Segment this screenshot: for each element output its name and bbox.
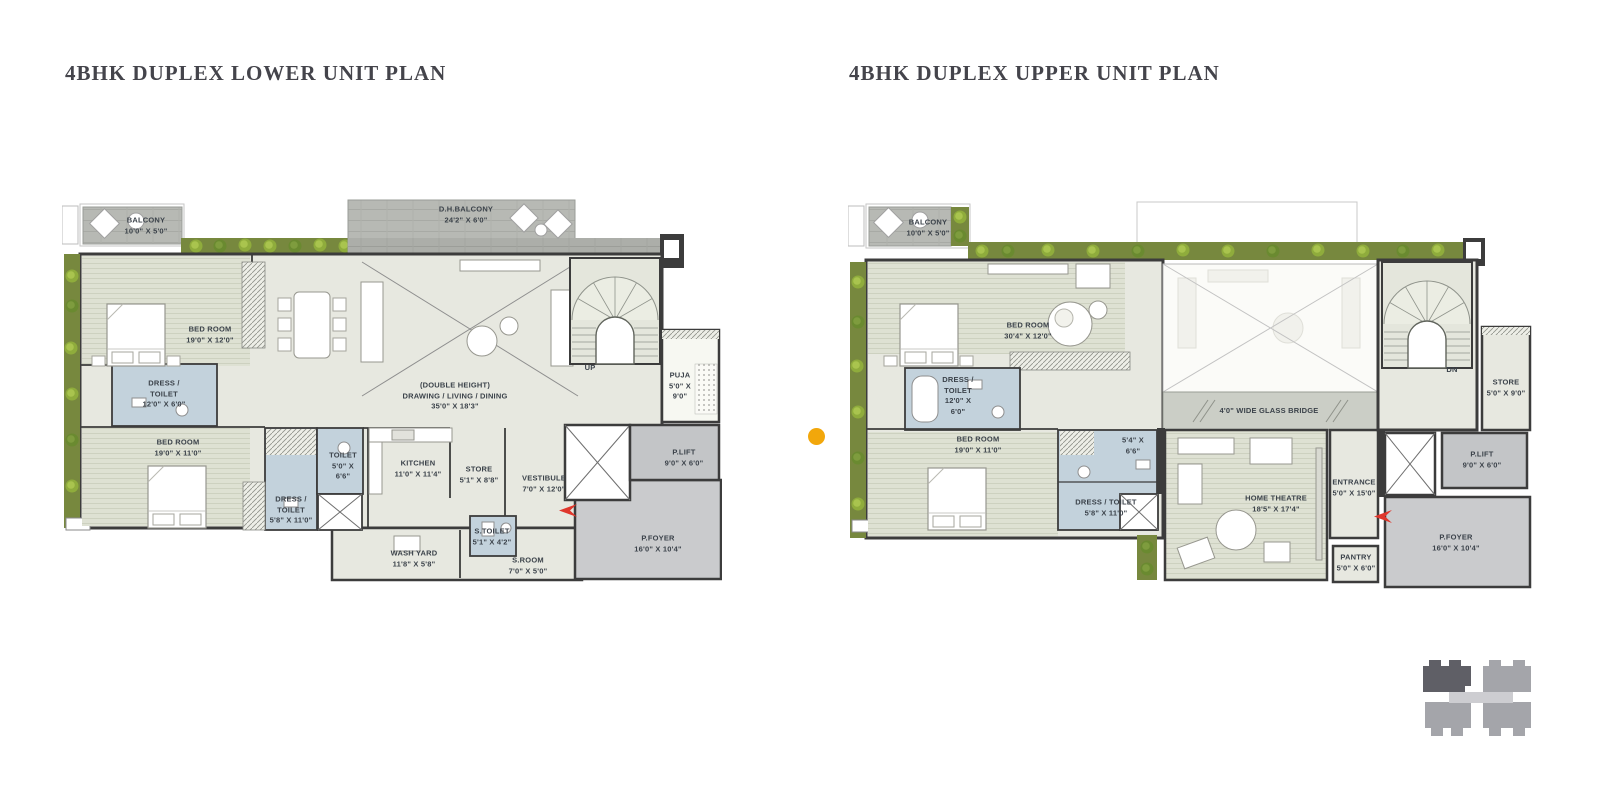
room-label-s-toilet: S.TOILET5'1" X 4'2" xyxy=(473,527,512,548)
glass-bridge-label: 4'0" WIDE GLASS BRIDGE xyxy=(1220,406,1319,417)
room-label-wash-yard: WASH YARD11'8" X 5'8" xyxy=(391,549,438,570)
floorplan-sheet: 4BHK DUPLEX LOWER UNIT PLAN 4BHK DUPLEX … xyxy=(0,0,1600,800)
room-label-p-lift: P.LIFT9'0" X 6'0" xyxy=(665,448,704,469)
wardrobe xyxy=(243,482,265,530)
room-label-kitchen: KITCHEN11'0" X 11'4" xyxy=(395,459,442,480)
room-label-p-foyer: P.FOYER16'0" X 10'4" xyxy=(1432,533,1479,554)
room-label-dress-toilet2: DRESS / TOILET5'8" X 11'0" xyxy=(1075,498,1136,519)
room-label-pantry: PANTRY5'0" X 6'0" xyxy=(1337,553,1376,574)
staircase xyxy=(570,258,660,364)
double-height-void xyxy=(1163,264,1378,392)
room-label-store: STORE5'0" X 9'0" xyxy=(1487,378,1526,399)
wardrobe xyxy=(242,262,265,348)
lift-shaft xyxy=(1385,433,1435,495)
room-label-vestibule: VESTIBULE7'0" X 12'0" xyxy=(522,474,566,495)
room-label-balcony: BALCONY10'0" X 5'0" xyxy=(124,216,167,237)
duct-shaft xyxy=(318,494,362,530)
room-label-entrance: ENTRANCE5'0" X 15'0" xyxy=(1332,478,1375,499)
room-label-dress-toilet1: DRESS /TOILET12'0" X 6'0" xyxy=(142,378,185,410)
upper-unit-plan: BALCONY10'0" X 5'0" BED ROOM30'4" X 12'0… xyxy=(848,198,1548,590)
key-plan xyxy=(1421,656,1546,741)
room-label-puja: PUJA5'0" X9'0" xyxy=(669,370,691,402)
ht-planter xyxy=(1137,535,1157,580)
room-label-toilet: TOILET5'0" X6'6" xyxy=(329,450,357,482)
room-label-p-foyer: P.FOYER16'0" X 10'4" xyxy=(634,534,681,555)
key-plan-unit-highlighted xyxy=(1423,660,1471,696)
room-label-dress-toilet1: DRESS /TOILET12'0" X6'0" xyxy=(942,375,973,417)
room-label-balcony: BALCONY10'0" X 5'0" xyxy=(906,218,949,239)
room-label-store: STORE5'1" X 8'8" xyxy=(460,465,499,486)
legend-dot xyxy=(808,428,825,445)
room-label-living: (DOUBLE HEIGHT)DRAWING / LIVING / DINING… xyxy=(402,380,507,412)
upper-plan-title: 4BHK DUPLEX UPPER UNIT PLAN xyxy=(849,61,1220,86)
room-label-s-room: S.ROOM7'0" X 5'0" xyxy=(509,556,548,577)
room-label-bedroom2: BED ROOM19'0" X 11'0" xyxy=(154,438,201,459)
room-label-dh-balcony: D.H.BALCONY24'2" X 6'0" xyxy=(439,205,493,226)
room-label-home-theatre: HOME THEATRE18'5" X 17'4" xyxy=(1245,494,1307,515)
open-below-outline xyxy=(1137,202,1357,248)
room-label-bedroom1: BED ROOM19'0" X 12'0" xyxy=(186,325,233,346)
room-label-p-lift: P.LIFT9'0" X 6'0" xyxy=(1463,450,1502,471)
staircase xyxy=(1382,262,1472,368)
top-planter xyxy=(968,242,1465,260)
wardrobe xyxy=(1010,352,1130,370)
corner-niche xyxy=(1466,242,1481,259)
key-plan-core xyxy=(1449,692,1513,703)
lower-plan-title: 4BHK DUPLEX LOWER UNIT PLAN xyxy=(65,61,446,86)
stair-direction-label: UP xyxy=(585,363,596,374)
lift-shaft xyxy=(565,425,630,500)
room-label-toilet-small: 5'4" X6'6" xyxy=(1122,436,1144,457)
room-label-bedroom1: BED ROOM30'4" X 12'0" xyxy=(1004,321,1051,342)
room-label-dress-toilet2: DRESS /TOILET5'8" X 11'0" xyxy=(270,494,313,526)
top-planter xyxy=(181,238,362,254)
room-label-bedroom2: BED ROOM19'0" X 11'0" xyxy=(954,435,1001,456)
dh-balcony-deck xyxy=(348,200,660,254)
corner-niche xyxy=(664,240,679,258)
lower-unit-plan: BALCONY10'0" X 5'0" D.H.BALCONY24'2" X 6… xyxy=(62,198,722,590)
stair-direction-label: DN xyxy=(1446,365,1457,376)
